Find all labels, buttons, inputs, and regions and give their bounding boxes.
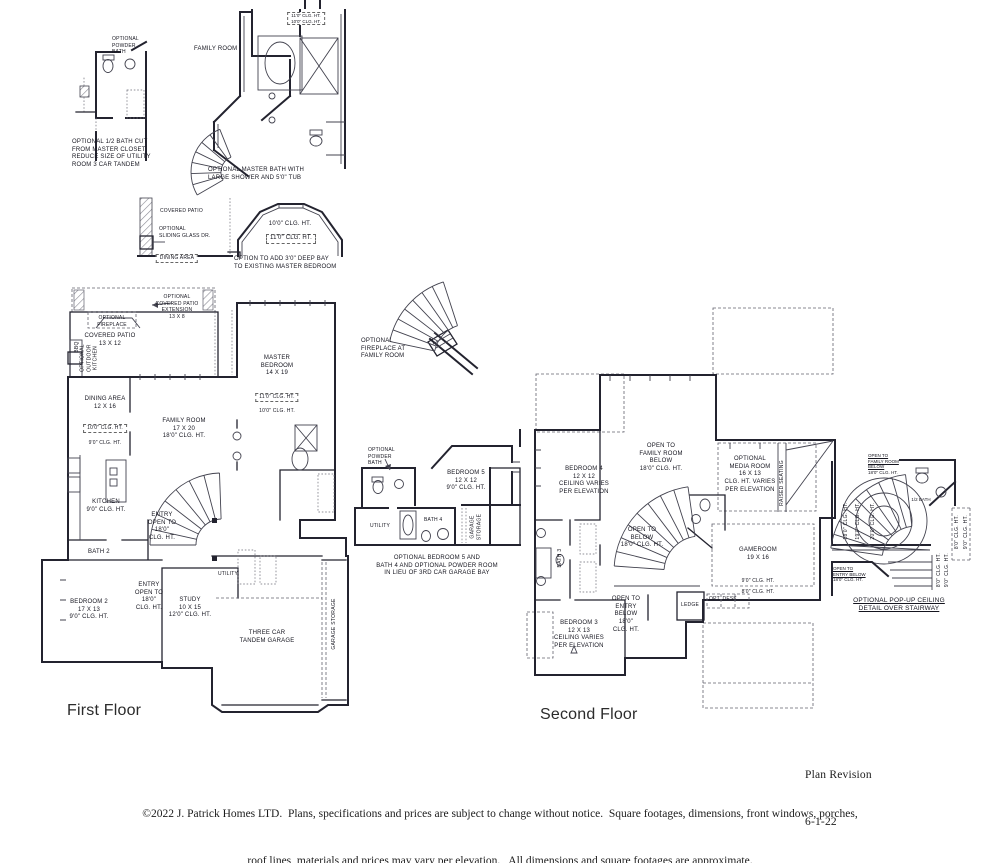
label-master-bath-clg: 11'0" CLG. HT. 10'0" CLG. HT. — [287, 12, 325, 25]
text-line: CEILING VARIES — [554, 635, 604, 643]
label-utility-2: UTILITY — [370, 523, 390, 530]
text-line: DINING AREA — [85, 396, 126, 404]
text-line: 19 X 16 — [739, 555, 777, 563]
text-line: OPT. DESK — [709, 596, 737, 603]
caption-bedroom5-option: OPTIONAL BEDROOM 5 AND BATH 4 AND OPTION… — [376, 555, 498, 578]
label-open-to-entry: OPEN TO ENTRY BELOW 18'0" CLG. HT. — [612, 596, 640, 634]
text-line: GARAGE — [470, 514, 477, 540]
second-floor-title: Second Floor — [540, 705, 638, 725]
label-bedroom-3: BEDROOM 3 12 X 13 CEILING VARIES PER ELE… — [554, 620, 604, 651]
text-line: 9'0" CLG. HT. — [963, 515, 969, 549]
first-floor-title: First Floor — [67, 701, 141, 721]
label-ring-clg-19: 19'0" CLG. HT. — [855, 502, 862, 539]
text-line: 1/2 BATH — [911, 497, 930, 503]
label-half-bath: 1/2 BATH — [911, 497, 930, 503]
label-bath-3: BATH 3 — [557, 549, 564, 568]
text-line: 18'0" — [148, 527, 176, 535]
label-open-to-family-room: OPEN TO FAMILY ROOM BELOW 18'0" CLG. HT. — [639, 443, 682, 474]
label-bay-clg2: 11'0" CLG. HT. — [266, 234, 316, 244]
text-line: OPTIONAL — [79, 344, 86, 372]
text-line: BATH 3 — [557, 549, 563, 568]
text-line: 11'0" CLG. HT. — [259, 394, 294, 401]
label-garage: THREE CAR TANDEM GARAGE — [240, 630, 295, 645]
text-line: 9'0" CLG. HT. — [87, 507, 126, 515]
label-ledge: LEDGE — [681, 602, 699, 609]
label-bay-clg1: 10'0" CLG. HT. — [269, 221, 311, 229]
label-side-clg-8a: 8'0" CLG. HT. — [936, 553, 943, 587]
text-line: PER ELEVATION — [559, 489, 609, 497]
text-line: OPTIONAL — [725, 456, 776, 464]
text-line: 8'0" CLG. HT. — [954, 515, 960, 549]
text-line: BATH — [368, 460, 395, 467]
text-line: OPEN TO — [148, 520, 176, 528]
text-line: 17 X 20 — [162, 426, 205, 434]
text-line: 20'0" CLG. HT. — [870, 502, 876, 539]
label-entry-2: ENTRY OPEN TO 18'0" CLG. HT. — [135, 582, 163, 613]
label-popup-header: OPEN TO FAMILY ROOM BELOW 18'0" CLG. HT. — [868, 453, 899, 476]
text-line: 18'0" — [612, 619, 640, 627]
text-line: BATH — [112, 49, 139, 56]
label-open-to-below: OPEN TO BELOW 18'0" CLG. HT. — [621, 527, 663, 550]
inset-master-bath-drawing — [191, 0, 345, 195]
text-line: 12'0" CLG. HT. — [169, 612, 211, 620]
text-line: OPTION TO ADD 3'0" DEEP BAY — [234, 256, 336, 264]
text-line: BELOW — [621, 535, 663, 543]
text-line: OPEN TO — [621, 527, 663, 535]
text-line: 11'0" CLG. HT. — [291, 13, 321, 19]
text-line: 13 X 8 — [156, 314, 199, 321]
text-line: 18'0" CLG. HT. — [868, 470, 899, 476]
text-line: 19'0" CLG. HT. — [855, 502, 861, 539]
text-line: 10 X 15 — [169, 605, 211, 613]
text-line: TO EXISTING MASTER BEDROOM — [234, 264, 336, 272]
text-line: ENTRY — [148, 512, 176, 520]
text-line: OPTIONAL — [361, 338, 405, 346]
text-line: OPTIONAL — [112, 36, 139, 43]
label-gameroom: GAMEROOM 19 X 16 — [739, 547, 777, 562]
text-line: ©2022 J. Patrick Homes LTD. Plans, speci… — [142, 807, 857, 823]
text-line: IN LIEU OF 3RD CAR GARAGE BAY — [376, 570, 498, 578]
label-outdoor-kitchen: OPTIONAL OUTDOOR KITCHEN — [79, 344, 99, 372]
text-line: BELOW — [639, 458, 682, 466]
label-bedroom-5: BEDROOM 5 12 X 12 9'0" CLG. HT. — [447, 470, 486, 493]
caption-master-bath-option: OPTIONAL MASTER BATH WITH LARGE SHOWER A… — [208, 167, 304, 182]
text-line: FAMILY ROOM — [361, 353, 405, 361]
copyright-notice: ©2022 J. Patrick Homes LTD. Plans, speci… — [142, 776, 857, 863]
text-line: 14 X 19 — [261, 370, 293, 378]
label-dining-clg1: 10'0" CLG. HT. — [83, 424, 127, 433]
label-bedroom-2: BEDROOM 2 17 X 13 9'0" CLG. HT. — [70, 599, 109, 622]
label-master-clg1: 11'0" CLG. HT. — [255, 393, 298, 402]
text-line: BATH 4 — [424, 517, 442, 524]
label-dining-area: DINING AREA 12 X 16 — [85, 396, 126, 411]
text-line: OPTIONAL — [368, 447, 395, 454]
text-line: FIREPLACE AT — [361, 346, 405, 354]
text-line: CEILING VARIES — [559, 481, 609, 489]
label-opt-desk: OPT. DESK — [709, 596, 737, 603]
text-line: 18'0" CLG. HT. — [162, 433, 205, 441]
text-line: STUDY — [169, 597, 211, 605]
text-line: CLG. HT. — [612, 627, 640, 635]
label-optional-fireplace: OPTIONAL FIREPLACE — [97, 315, 127, 328]
label-covered-patio-inset: COVERED PATIO — [160, 208, 203, 215]
label-side-clg-9b: 9'0" CLG. HT. — [963, 515, 970, 549]
label-garage-storage: GARAGE STORAGE — [331, 598, 338, 649]
text-line: OPEN TO — [135, 590, 163, 598]
label-dining-clg2: 9'0" CLG. HT. — [89, 440, 122, 447]
label-sliding-glass-door: OPTIONAL SLIDING GLASS DR. — [159, 226, 210, 239]
text-line: 8'0" CLG. HT. — [742, 589, 775, 596]
text-line: 8'0" CLG. HT. — [936, 553, 942, 587]
text-line: REDUCE SIZE OF UTILITY — [72, 154, 151, 162]
caption-bay-option: OPTION TO ADD 3'0" DEEP BAY TO EXISTING … — [234, 256, 336, 271]
label-ring-clg-18: 18'0" CLG. HT. — [843, 502, 850, 539]
label-family-room: FAMILY ROOM 17 X 20 18'0" CLG. HT. — [162, 418, 205, 441]
text-line: OPTIONAL BEDROOM 5 AND — [376, 555, 498, 563]
text-line: PER ELEVATION — [554, 643, 604, 651]
text-line: 10'0" CLG. HT. — [291, 19, 321, 25]
text-line: GARAGE STORAGE — [331, 598, 337, 649]
label-dining-area-inset: DINING AREA — [156, 254, 198, 263]
text-line: BATH 2 — [88, 549, 110, 557]
caption-fireplace-option: OPTIONAL FIREPLACE AT FAMILY ROOM — [361, 338, 405, 361]
label-patio-extension: OPTIONAL COVERED PATIO EXTENSION 13 X 8 — [156, 294, 199, 320]
text-line: UTILITY — [370, 523, 390, 530]
text-line: 18'0" CLG. HT. — [833, 577, 866, 583]
text-line: DETAIL OVER STAIRWAY — [853, 605, 945, 613]
label-master-bedroom: MASTER BEDROOM 14 X 19 — [261, 355, 293, 378]
label-optional-powder-bath-2: OPTIONAL POWDER BATH — [368, 447, 395, 467]
text-line: CLG. HT. — [135, 605, 163, 613]
text-line: BEDROOM 3 — [554, 620, 604, 628]
text-line: OPEN TO — [639, 443, 682, 451]
text-line: OPTIONAL 1/2 BATH CUT — [72, 139, 151, 147]
text-line: OPEN TO — [612, 596, 640, 604]
text-line: 12 X 13 — [554, 628, 604, 636]
text-line: ENTRY — [612, 604, 640, 612]
title-popup-ceiling-detail: OPTIONAL POP-UP CEILING DETAIL OVER STAI… — [853, 597, 945, 614]
text-line: FAMILY ROOM — [194, 46, 237, 54]
text-line: PER ELEVATION — [725, 487, 776, 495]
text-line: LEDGE — [681, 602, 699, 609]
label-media-room: OPTIONAL MEDIA ROOM 16 X 13 CLG. HT. VAR… — [725, 456, 776, 494]
text-line: BATH 4 AND OPTIONAL POWDER ROOM — [376, 563, 498, 571]
label-optional-powder-bath: OPTIONAL POWDER BATH — [112, 36, 139, 56]
text-line: 16 X 13 — [725, 471, 776, 479]
label-gameroom-clg1: 9'0" CLG. HT. — [742, 578, 775, 585]
text-line: OPTIONAL — [97, 315, 127, 322]
text-line: 18'0" CLG. HT. — [621, 542, 663, 550]
text-line: BEDROOM — [261, 363, 293, 371]
label-family-room-inset: FAMILY ROOM — [194, 46, 237, 54]
text-line: 9'0" CLG. HT. — [742, 578, 775, 585]
text-line: MASTER — [261, 355, 293, 363]
text-line: FAMILY ROOM — [639, 451, 682, 459]
text-line: BEDROOM 5 — [447, 470, 486, 478]
text-line: KITCHEN — [87, 499, 126, 507]
text-line: TANDEM GARAGE — [240, 638, 295, 646]
text-line: KITCHEN — [92, 344, 99, 372]
text-line: FAMILY ROOM — [162, 418, 205, 426]
text-line: 17 X 13 — [70, 607, 109, 615]
text-line: EXTENSION — [156, 307, 199, 314]
text-line: SLIDING GLASS DR. — [159, 233, 210, 240]
label-side-clg-9a: 9'0" CLG. HT. — [944, 553, 951, 587]
text-line: BEDROOM 2 — [70, 599, 109, 607]
text-line: ENTRY — [135, 582, 163, 590]
text-line: 10'0" CLG. HT. — [259, 408, 295, 415]
text-line: GAMEROOM — [739, 547, 777, 555]
text-line: OPTIONAL POP-UP CEILING — [853, 597, 945, 605]
text-line: UTILITY — [218, 571, 238, 578]
label-side-clg-8b: 8'0" CLG. HT. — [954, 515, 961, 549]
text-line: COVERED PATIO — [160, 208, 203, 215]
caption-half-bath-option: OPTIONAL 1/2 BATH CUT FROM MASTER CLOSET… — [72, 139, 151, 170]
text-line: 10'0" CLG. HT. — [269, 221, 311, 229]
text-line: 18'0" CLG. HT. — [639, 466, 682, 474]
label-ring-clg-20: 20'0" CLG. HT. — [870, 502, 877, 539]
text-line: OPTIONAL MASTER BATH WITH — [208, 167, 304, 175]
text-line: 9'0" CLG. HT. — [89, 440, 122, 447]
text-line: LARGE SHOWER AND 5'0" TUB — [208, 175, 304, 183]
text-line: 9'0" CLG. HT. — [70, 614, 109, 622]
text-line: ROOM 3 CAR TANDEM — [72, 162, 151, 170]
label-entry-1: ENTRY OPEN TO 18'0" CLG. HT. — [148, 512, 176, 543]
text-line: BELOW — [612, 611, 640, 619]
floor-plan-sheet: OPTIONAL POWDER BATH OPTIONAL 1/2 BATH C… — [0, 0, 1000, 863]
inset-bay-drawing — [238, 204, 342, 256]
label-study: STUDY 10 X 15 12'0" CLG. HT. — [169, 597, 211, 620]
floor-plan-linework — [0, 0, 1000, 863]
text-line: First Floor — [67, 702, 141, 719]
text-line: COVERED PATIO — [84, 333, 135, 341]
label-bedroom-4: BEDROOM 4 12 X 12 CEILING VARIES PER ELE… — [559, 466, 609, 497]
text-line: 9'0" CLG. HT. — [447, 485, 486, 493]
text-line: roof lines, materials and prices may var… — [142, 854, 857, 863]
label-popup-open-entry: OPEN TO ENTRY BELOW 18'0" CLG. HT. — [833, 566, 866, 583]
label-kitchen: KITCHEN 9'0" CLG. HT. — [87, 499, 126, 514]
text-line: 9'0" CLG. HT. — [944, 553, 950, 587]
text-line: 12 X 12 — [559, 474, 609, 482]
text-line: RAISED SEATING — [779, 460, 785, 506]
label-utility: UTILITY — [218, 571, 238, 578]
text-line: Second Floor — [540, 706, 638, 723]
text-line: THREE CAR — [240, 630, 295, 638]
text-line: BEDROOM 4 — [559, 466, 609, 474]
text-line: 18'0" — [135, 597, 163, 605]
label-raised-seating: RAISED SEATING — [779, 460, 786, 506]
text-line: STORAGE — [476, 514, 483, 540]
text-line: FROM MASTER CLOSET — [72, 147, 151, 155]
text-line: DINING AREA — [160, 255, 194, 262]
label-bath-4: BATH 4 — [424, 517, 442, 524]
label-bath-2: BATH 2 — [88, 549, 110, 557]
text-line: 12 X 16 — [85, 404, 126, 412]
label-master-clg2: 10'0" CLG. HT. — [259, 408, 295, 415]
text-line: MEDIA ROOM — [725, 464, 776, 472]
text-line: CLG. HT. VARIES — [725, 479, 776, 487]
text-line: 18'0" CLG. HT. — [843, 502, 849, 539]
text-line: 11'0" CLG. HT. — [270, 235, 312, 243]
text-line: 10'0" CLG. HT. — [87, 425, 123, 432]
text-line: CLG. HT. — [148, 535, 176, 543]
label-gameroom-clg2: 8'0" CLG. HT. — [742, 589, 775, 596]
label-garage-storage-2: GARAGE STORAGE — [470, 514, 483, 540]
text-line: 12 X 12 — [447, 478, 486, 486]
text-line: FIREPLACE — [97, 322, 127, 329]
